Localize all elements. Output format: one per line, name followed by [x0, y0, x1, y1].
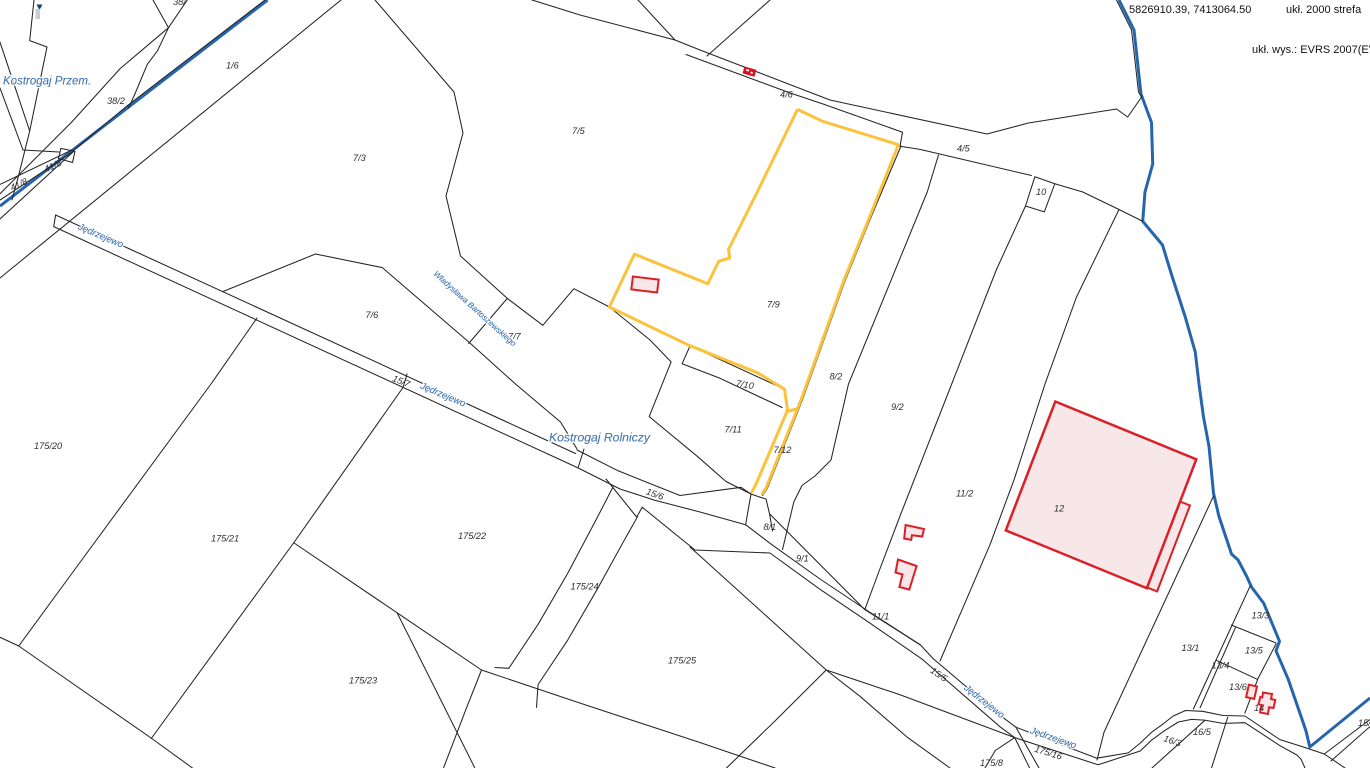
svg-text:38/2: 38/2: [107, 96, 125, 106]
svg-text:7/6: 7/6: [366, 310, 380, 320]
svg-text:14: 14: [1254, 703, 1264, 713]
svg-text:1/6: 1/6: [226, 61, 240, 71]
svg-text:7/9: 7/9: [767, 300, 780, 310]
svg-text:11/2: 11/2: [956, 489, 973, 499]
svg-text:11/1: 11/1: [872, 612, 889, 622]
svg-text:175/22: 175/22: [458, 531, 486, 541]
svg-text:16/5: 16/5: [1193, 727, 1212, 737]
svg-text:13/5: 13/5: [1245, 646, 1264, 656]
svg-text:Jędrzejewo: Jędrzejewo: [75, 221, 124, 250]
svg-text:Kostrogaj Rolniczy: Kostrogaj Rolniczy: [549, 431, 651, 445]
svg-text:38/: 38/: [173, 0, 187, 7]
svg-text:175/23: 175/23: [349, 676, 378, 686]
svg-text:13/1: 13/1: [1182, 643, 1200, 653]
svg-text:13/6: 13/6: [1229, 682, 1248, 692]
svg-text:175/21: 175/21: [211, 534, 239, 544]
svg-text:9/1: 9/1: [796, 554, 809, 564]
svg-text:4/6: 4/6: [780, 90, 794, 100]
svg-text:8/1: 8/1: [764, 522, 777, 532]
svg-text:8/2: 8/2: [830, 372, 843, 382]
svg-text:7/3: 7/3: [353, 153, 367, 163]
svg-text:7/10: 7/10: [735, 378, 755, 391]
svg-text:16/3: 16/3: [1162, 733, 1183, 748]
svg-text:4/5: 4/5: [957, 144, 971, 154]
svg-text:15/5: 15/5: [929, 665, 950, 684]
svg-text:7/5: 7/5: [572, 126, 586, 136]
svg-text:5826910.39, 7413064.50: 5826910.39, 7413064.50: [1129, 4, 1251, 16]
svg-text:175/20: 175/20: [34, 441, 63, 451]
svg-text:175/25: 175/25: [668, 656, 697, 666]
svg-text:12: 12: [1054, 504, 1064, 514]
svg-text:175/24: 175/24: [571, 582, 599, 592]
svg-text:Jędrzejewo: Jędrzejewo: [961, 682, 1006, 721]
svg-text:13/4: 13/4: [1212, 661, 1230, 671]
svg-text:Kostrogaj Przem.: Kostrogaj Przem.: [3, 76, 91, 88]
svg-text:7/12: 7/12: [774, 445, 792, 455]
svg-text:175/8: 175/8: [980, 758, 1004, 768]
svg-text:13/3: 13/3: [1252, 611, 1271, 621]
svg-text:15/8: 15/8: [1358, 718, 1370, 728]
svg-text:7/11: 7/11: [725, 425, 742, 435]
svg-text:175/16: 175/16: [1033, 744, 1064, 762]
svg-text:ukł. wys.: EVRS 2007(EV: ukł. wys.: EVRS 2007(EV: [1252, 44, 1370, 56]
svg-text:9/2: 9/2: [891, 402, 904, 412]
svg-text:ukł. 2000 strefa: ukł. 2000 strefa: [1286, 4, 1362, 16]
svg-text:10: 10: [1036, 187, 1047, 197]
